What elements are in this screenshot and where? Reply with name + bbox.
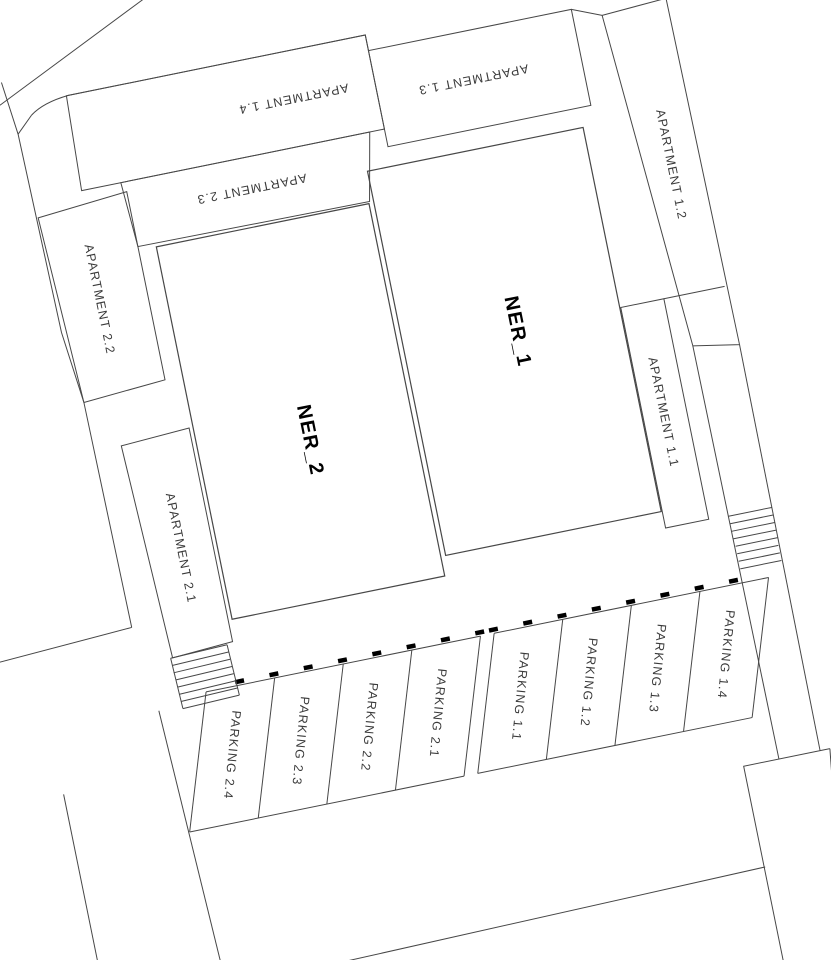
boundary-wedge-connector (15, 115, 35, 134)
parking-group-2 (163, 636, 507, 832)
parking-stall-divider (369, 650, 439, 790)
parking-tick (441, 636, 451, 642)
apartment-1-1-top-extension (664, 286, 725, 298)
parking-tick (523, 620, 533, 626)
parking-tick (338, 657, 348, 663)
parking-tick (489, 627, 499, 633)
corridor-bottom-right (744, 749, 831, 960)
walkway-right-outer-edge (738, 345, 822, 751)
path-edge-lower-left (159, 708, 236, 960)
boundary-top-left-diagonal (0, 0, 158, 105)
parking-1-1-label: PARKING 1.1 (509, 651, 532, 741)
parking-stall-divider (437, 636, 507, 776)
parking-stall-divider (725, 577, 795, 717)
parking-2-2-label: PARKING 2.2 (358, 682, 381, 772)
parking-tick (372, 650, 382, 656)
building-ner-2-label: NER_2 (292, 403, 328, 478)
parking-tick (729, 578, 739, 584)
boundary-lower-left (64, 794, 119, 960)
apartment-1-4-area (62, 35, 384, 191)
parking-stall-divider (520, 619, 590, 759)
site-plan-rotated-group: NER_1 NER_2 APARTMENT 1.1 APARTMENT 1.2 … (0, 0, 831, 960)
parking-2-4-label: PARKING 2.4 (221, 710, 244, 800)
apartment-1-3-label: APARTMENT 1.3 (417, 61, 530, 97)
parking-1-4-label: PARKING 1.4 (715, 609, 738, 699)
walkway-right-inner-edge (693, 346, 779, 760)
apartment-1-4-label: APARTMENT 1.4 (237, 81, 350, 117)
boundary-top-right-connector (571, 4, 602, 22)
boundary-top-inner (29, 35, 368, 119)
site-plan-page: NER_1 NER_2 APARTMENT 1.1 APARTMENT 1.2 … (0, 0, 831, 960)
boundary-left (1, 79, 131, 632)
parking-tick (475, 629, 485, 635)
parking-group-1 (451, 577, 795, 773)
parking-stall-divider (232, 678, 302, 818)
parking-stall-divider (300, 664, 370, 804)
parking-tick (269, 671, 279, 677)
staircase-right-steps (729, 507, 783, 569)
boundary-lower-right (807, 749, 831, 929)
parking-tick (591, 606, 601, 612)
staircase-right (729, 507, 783, 569)
apartment-1-1-label: APARTMENT 1.1 (645, 356, 681, 469)
road-edge-left (0, 627, 133, 663)
apartment-2-2-label: APARTMENT 2.2 (82, 243, 118, 356)
parking-stall-divider (451, 633, 521, 773)
parking-tick (660, 592, 670, 598)
apartment-2-3-label: APARTMENT 2.3 (195, 171, 308, 207)
parking-1-2-label: PARKING 1.2 (578, 637, 601, 727)
parking-stall-divider (588, 605, 658, 745)
building-ner-1-label: NER_1 (500, 294, 536, 369)
site-plan-canvas: NER_1 NER_2 APARTMENT 1.1 APARTMENT 1.2 … (0, 0, 831, 960)
parking-2-3-label: PARKING 2.3 (289, 696, 312, 786)
parking-tick (406, 643, 416, 649)
parking-tick (303, 664, 313, 670)
parking-tick (557, 613, 567, 619)
parking-2-1-label: PARKING 2.1 (427, 668, 450, 758)
parking-1-3-label: PARKING 1.3 (646, 623, 669, 713)
apartment-2-1-label: APARTMENT 2.1 (163, 492, 199, 605)
parking-tick (694, 585, 704, 591)
parking-stall-divider (657, 591, 727, 731)
apartment-1-2-label: APARTMENT 1.2 (653, 108, 689, 221)
road-edge-bottom (333, 867, 767, 960)
parking-stall-divider (163, 692, 233, 832)
parking-tick (626, 599, 636, 605)
